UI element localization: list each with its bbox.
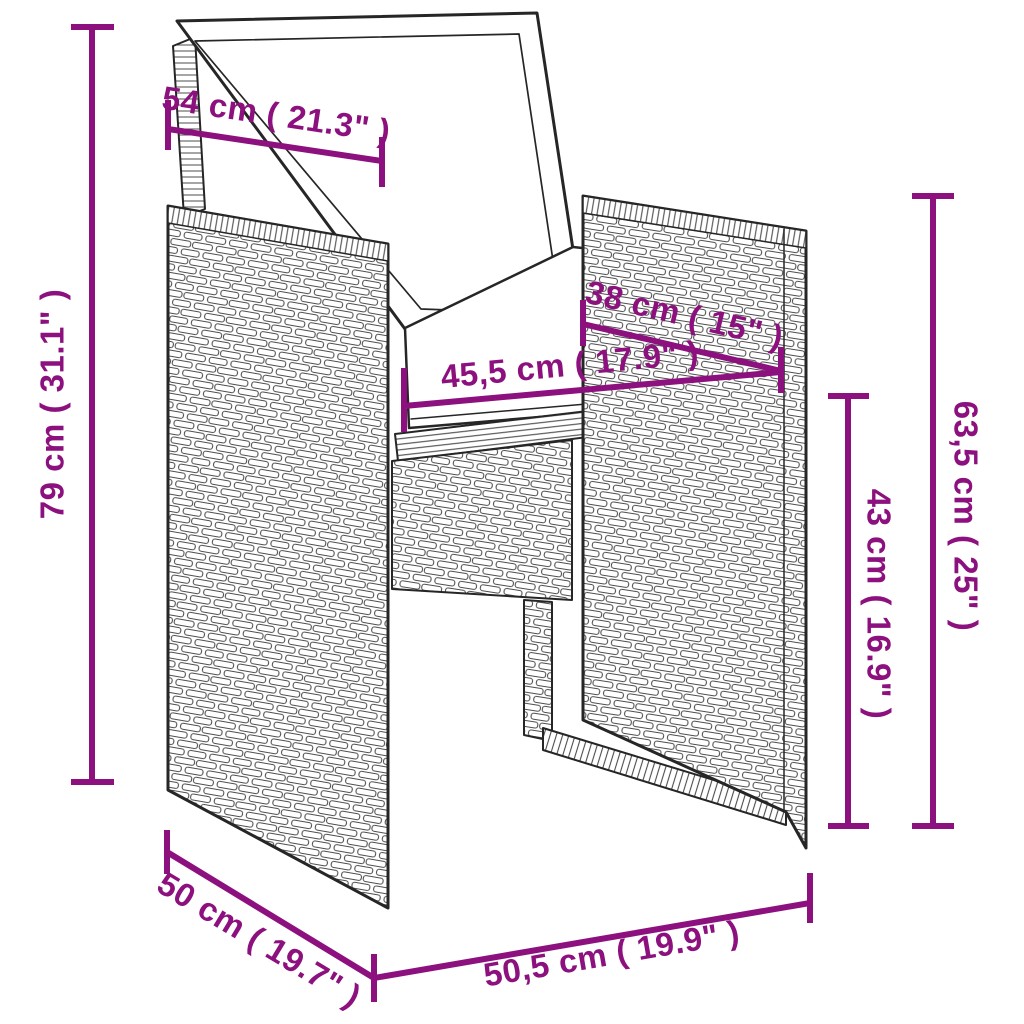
label-total-height: 79 cm ( 31.1" ) (34, 289, 71, 519)
left-side-panel (168, 206, 388, 908)
label-side-height: 63,5 cm ( 25" ) (947, 401, 984, 631)
dim-line-total-height (71, 27, 114, 782)
label-front-width: 50,5 cm ( 19.9" ) (481, 913, 742, 994)
chair-illustration (168, 13, 806, 908)
inner-leg (524, 600, 552, 741)
chair-dimension-diagram: 54 cm ( 21.3" ) 79 cm ( 31.1" ) 38 cm ( … (0, 0, 1024, 1024)
label-side-depth: 50 cm ( 19.7" ) (151, 864, 368, 1014)
under-seat-apron (392, 440, 572, 600)
dimension-diagram-image: 54 cm ( 21.3" ) 79 cm ( 31.1" ) 38 cm ( … (0, 0, 1024, 1024)
back-cushion-edge-roll (173, 37, 205, 217)
label-seat-height: 43 cm ( 16.9" ) (860, 489, 897, 719)
